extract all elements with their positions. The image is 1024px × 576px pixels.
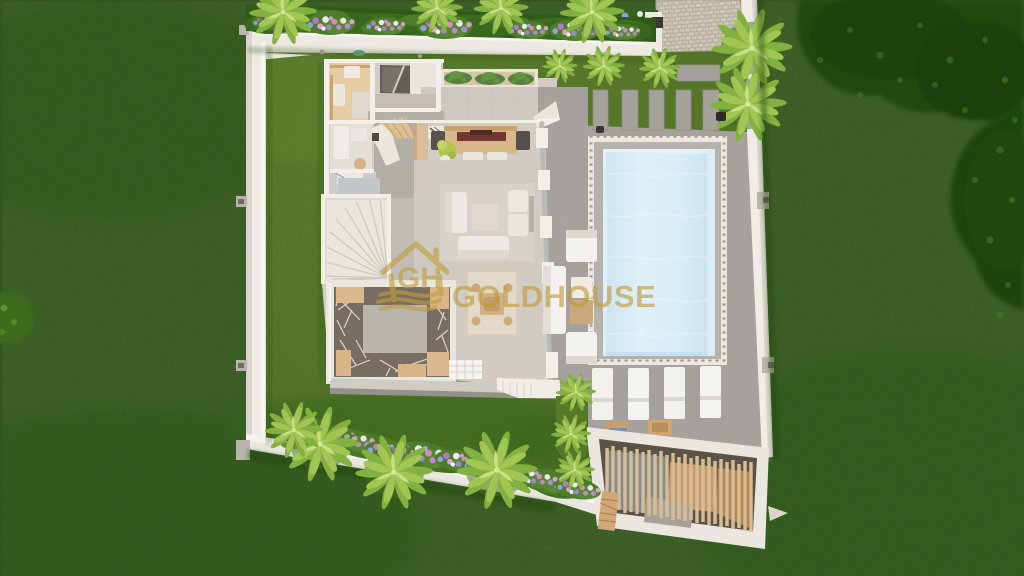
svg-text:GH: GH <box>397 262 442 295</box>
svg-text:GOLDHOUSE: GOLDHOUSE <box>452 279 656 314</box>
